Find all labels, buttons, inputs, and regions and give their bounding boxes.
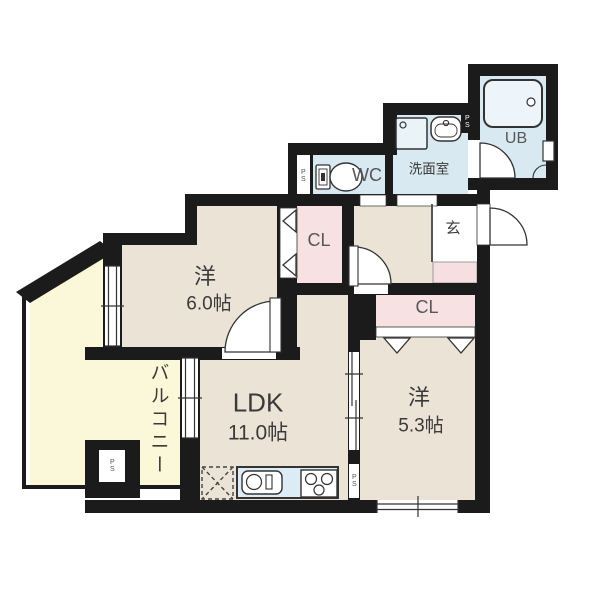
- floor-plan: 洋 6.0帖 LDK 11.0帖 洋 5.3帖 バルコニー CL CL WC 洗…: [0, 0, 600, 600]
- room-label-wc: WC: [352, 166, 382, 186]
- door-closet-1: [280, 208, 297, 278]
- room-label-entrance: 玄: [445, 221, 460, 238]
- ps-label-kitchen: PS: [350, 474, 358, 488]
- floor-plan-drawing: [0, 0, 600, 600]
- ps-label-wc: PS: [299, 169, 307, 183]
- kitchen-sink-icon: [242, 471, 282, 494]
- entrance-step: [433, 262, 477, 283]
- room-label-ldk: LDK: [233, 389, 284, 418]
- washbasin-icon: [431, 117, 461, 141]
- room-size-ldk: 11.0帖: [228, 421, 288, 444]
- stove-icon: [301, 470, 337, 497]
- kitchen-counter: [237, 467, 338, 498]
- room-label-washroom: 洗面室: [409, 163, 450, 178]
- room-label-yo6: 洋: [194, 265, 216, 289]
- room-label-closet-1: CL: [307, 231, 330, 251]
- ps-label-balcony: PS: [108, 459, 116, 473]
- room-size-yo6: 6.0帖: [186, 295, 231, 316]
- room-label-yo53: 洋: [408, 386, 430, 410]
- door-entrance: [477, 204, 527, 245]
- room-size-yo53: 5.3帖: [398, 417, 443, 438]
- bath-counter-icon: [543, 141, 554, 161]
- ps-label-washroom: PS: [463, 115, 471, 129]
- room-label-closet-2: CL: [415, 298, 438, 318]
- bathtub-icon: [484, 80, 542, 127]
- room-label-balcony: バルコニー: [147, 363, 168, 478]
- entrance-divider-line: [431, 204, 433, 262]
- room-label-unit-bath: UB: [505, 130, 527, 148]
- wc-door-gap: [360, 195, 386, 206]
- washing-machine-icon: [396, 118, 427, 149]
